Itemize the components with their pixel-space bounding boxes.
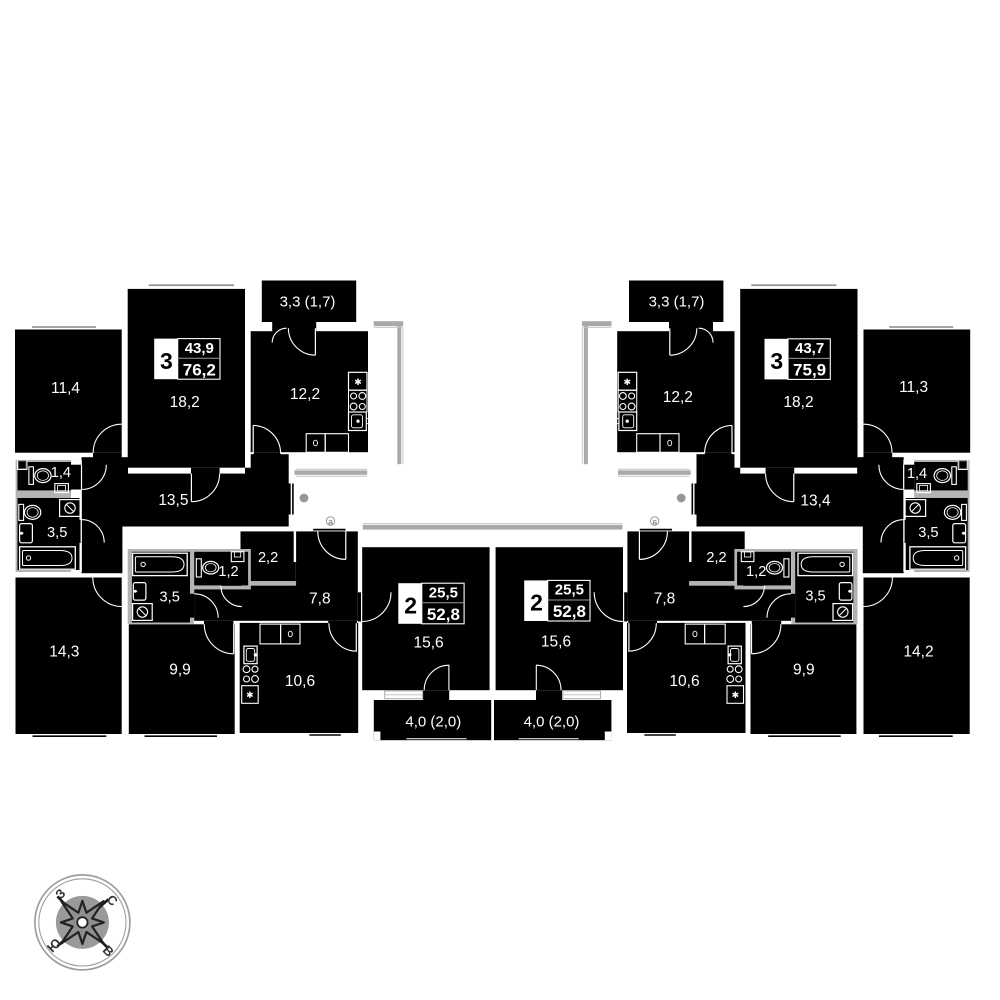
svg-text:3: 3	[160, 348, 173, 374]
svg-text:15,6: 15,6	[414, 635, 444, 652]
svg-text:11,3: 11,3	[899, 379, 928, 396]
svg-text:76,2: 76,2	[183, 360, 216, 379]
svg-text:12,2: 12,2	[663, 389, 693, 406]
svg-text:a: a	[652, 517, 657, 527]
svg-text:3,3 (1,7): 3,3 (1,7)	[280, 294, 336, 311]
svg-text:a: a	[328, 517, 333, 527]
svg-text:1,2: 1,2	[218, 564, 238, 580]
svg-text:4,0 (2,0): 4,0 (2,0)	[524, 714, 580, 731]
svg-text:1,4: 1,4	[51, 465, 71, 481]
svg-text:9,9: 9,9	[169, 662, 191, 679]
svg-text:15,6: 15,6	[541, 634, 571, 651]
svg-text:✱: ✱	[354, 377, 362, 387]
svg-text:43,9: 43,9	[185, 340, 214, 357]
svg-text:25,5: 25,5	[429, 584, 458, 601]
svg-text:14,3: 14,3	[49, 643, 79, 660]
svg-text:7,8: 7,8	[309, 590, 331, 607]
svg-text:2,2: 2,2	[258, 550, 278, 566]
svg-text:3,5: 3,5	[805, 589, 825, 605]
svg-text:13,5: 13,5	[158, 492, 188, 509]
svg-text:3,3 (1,7): 3,3 (1,7)	[649, 294, 705, 311]
svg-text:1,4: 1,4	[907, 466, 927, 482]
svg-text:12,2: 12,2	[290, 386, 320, 403]
svg-text:18,2: 18,2	[170, 394, 200, 411]
svg-text:✱: ✱	[732, 690, 740, 700]
svg-text:3: 3	[770, 348, 783, 374]
svg-text:✱: ✱	[623, 377, 631, 387]
svg-text:3,5: 3,5	[918, 525, 938, 541]
svg-text:10,6: 10,6	[669, 673, 699, 690]
svg-text:11,4: 11,4	[51, 380, 80, 397]
svg-text:25,5: 25,5	[555, 582, 584, 599]
svg-text:✱: ✱	[246, 690, 254, 700]
svg-text:3,5: 3,5	[160, 589, 180, 605]
svg-text:3,5: 3,5	[47, 525, 67, 541]
svg-text:18,2: 18,2	[783, 394, 813, 411]
svg-text:14,2: 14,2	[903, 643, 933, 660]
svg-text:43,7: 43,7	[795, 340, 824, 357]
svg-text:52,8: 52,8	[427, 605, 460, 624]
svg-text:2: 2	[530, 590, 543, 616]
svg-text:2,2: 2,2	[706, 550, 726, 566]
svg-text:10,6: 10,6	[285, 673, 315, 690]
svg-text:1,2: 1,2	[746, 564, 766, 580]
svg-text:9,9: 9,9	[793, 662, 815, 679]
svg-text:75,9: 75,9	[793, 361, 826, 380]
svg-text:2: 2	[404, 593, 417, 619]
svg-text:4,0 (2,0): 4,0 (2,0)	[405, 714, 461, 731]
svg-text:13,4: 13,4	[800, 493, 831, 510]
svg-text:52,8: 52,8	[553, 602, 586, 621]
svg-text:7,8: 7,8	[654, 590, 676, 607]
